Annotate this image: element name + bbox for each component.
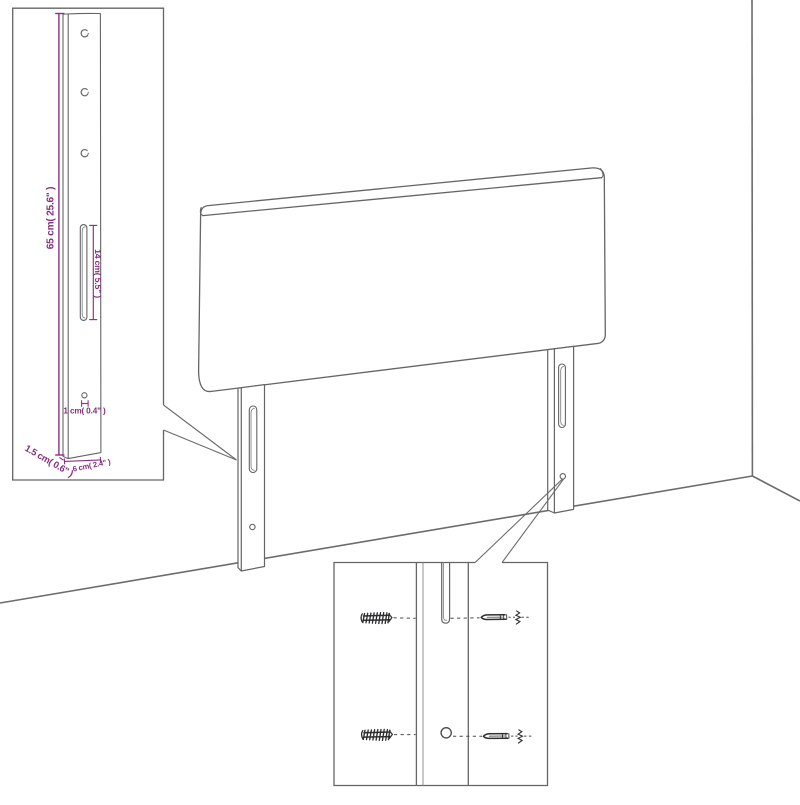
svg-text:65 cm( 25.6" ): 65 cm( 25.6" ) [45, 187, 56, 250]
svg-text:1 cm( 0.4" ): 1 cm( 0.4" ) [63, 406, 106, 415]
svg-text:14 cm( 5.5" ): 14 cm( 5.5" ) [93, 249, 103, 298]
